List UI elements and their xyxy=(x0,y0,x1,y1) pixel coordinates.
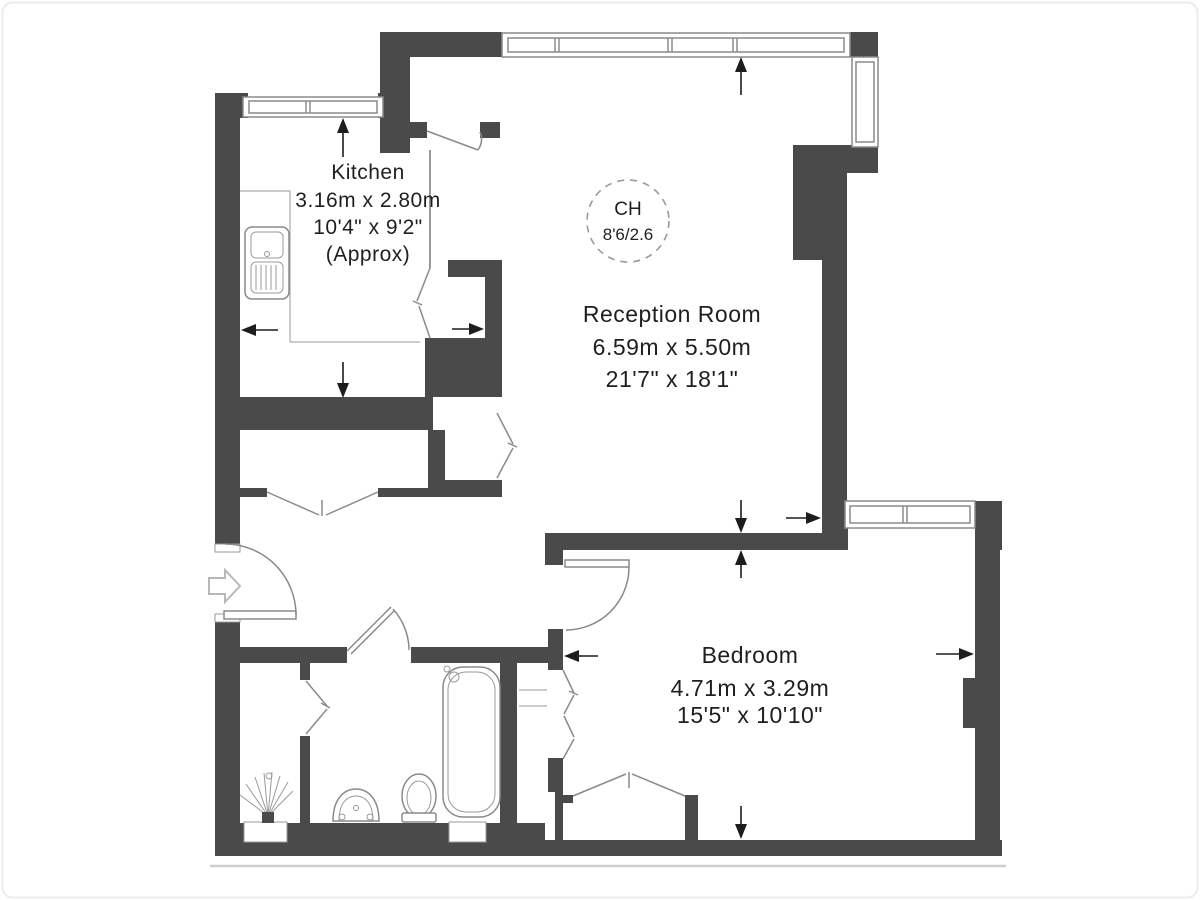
reception-arrow-down xyxy=(735,500,747,533)
reception-dim-imperial: 21'7" x 18'1" xyxy=(606,366,739,392)
ch-label: CH xyxy=(614,199,641,220)
reception-side-window xyxy=(852,57,878,147)
kitchen-arrow-down xyxy=(337,362,349,398)
bedroom-name: Bedroom xyxy=(702,642,799,668)
kitchen-dim-imperial: 10'4" x 9'2" xyxy=(313,216,423,239)
bedroom-arrow-left xyxy=(564,650,598,662)
kitchen-label: Kitchen 3.16m x 2.80m 10'4" x 9'2" (Appr… xyxy=(295,161,440,266)
bedroom-arrow-up xyxy=(735,550,747,578)
bedroom-arrow-right xyxy=(936,648,974,660)
ceiling-height-badge: CH 8'6/2.6 xyxy=(587,180,669,262)
bedroom-dim-metric: 4.71m x 3.29m xyxy=(671,675,830,701)
shower-icon xyxy=(240,772,293,823)
wash-basin xyxy=(333,789,379,821)
wall-segments xyxy=(215,32,1002,856)
kitchen-bifold-door xyxy=(413,268,430,338)
reception-name: Reception Room xyxy=(583,301,761,327)
bedroom-cupboard-bifold xyxy=(563,670,578,759)
ch-circle xyxy=(587,180,669,262)
floorplan-canvas: CH 8'6/2.6 Kitchen 3.16m x 2.80m 10'4" x… xyxy=(0,0,1200,900)
kitchen-arrow-right xyxy=(452,323,484,335)
kitchen-arrow-up xyxy=(337,118,349,157)
bedroom-closet-bifold xyxy=(573,772,685,796)
reception-label: Reception Room 6.59m x 5.50m 21'7" x 18'… xyxy=(583,301,761,392)
kitchen-dim-metric: 3.16m x 2.80m xyxy=(295,189,440,212)
ch-value: 8'6/2.6 xyxy=(603,225,654,244)
entry-arrow-icon xyxy=(209,570,240,602)
reception-arrow-up xyxy=(735,57,747,95)
bedroom-label: Bedroom 4.71m x 3.29m 15'5" x 10'10" xyxy=(671,642,830,728)
reception-arrow-right xyxy=(786,512,821,524)
shower-room-bifold xyxy=(306,681,330,734)
hall-closet-bifold xyxy=(267,492,378,516)
kitchen-name: Kitchen xyxy=(331,161,405,184)
reception-window xyxy=(502,33,850,57)
bedroom-door xyxy=(565,560,629,630)
bedroom-dim-imperial: 15'5" x 10'10" xyxy=(677,702,823,728)
kitchen-note: (Approx) xyxy=(326,243,411,266)
kitchen-window xyxy=(243,97,383,117)
bedroom-arrow-down xyxy=(735,806,747,839)
toilet xyxy=(402,774,436,822)
kitchen-sink xyxy=(245,227,289,299)
reception-dim-metric: 6.59m x 5.50m xyxy=(593,334,752,360)
bathroom-door xyxy=(347,607,409,654)
floorplan-page: CH 8'6/2.6 Kitchen 3.16m x 2.80m 10'4" x… xyxy=(0,0,1200,900)
lower-closet-bifold xyxy=(497,413,517,478)
bathtub xyxy=(443,666,500,817)
page-border xyxy=(3,3,1198,898)
reception-closet-door xyxy=(427,131,482,150)
kitchen-arrow-left xyxy=(241,324,278,336)
bedroom-window xyxy=(845,501,975,528)
cupboard-shelves xyxy=(519,690,547,706)
